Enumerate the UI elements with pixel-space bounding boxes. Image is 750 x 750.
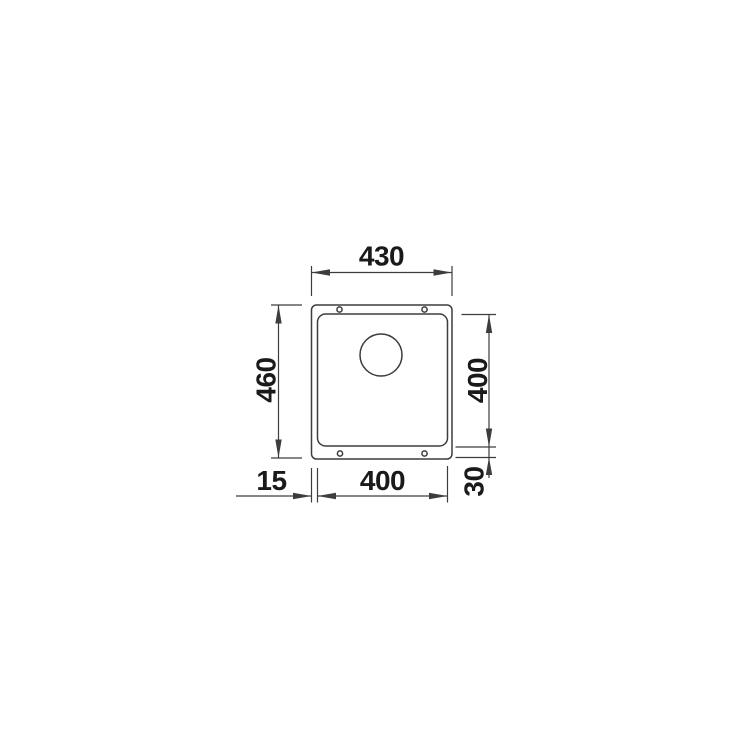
dimension-label-bottom-rim-offset: 30 [459,466,490,496]
arrowhead-down-icon [486,429,492,448]
sink-outer-edge [312,305,453,459]
mounting-hole-bottom-right [422,451,427,456]
arrowhead-left-icon [318,493,337,499]
sink-dimension-drawing: 430 460 400 30 [0,0,750,750]
dimension-left-rim-offset: 15 [236,465,312,499]
mounting-hole-top-left [337,307,342,312]
arrowhead-up-icon [275,305,281,324]
dimension-label-outer-width: 430 [359,241,404,272]
arrowhead-right-icon [429,493,448,499]
arrowhead-left-icon [312,269,331,275]
arrowhead-right-icon [434,269,453,275]
dimension-outer-height: 460 [251,305,303,458]
drain-hole [360,334,402,376]
dimension-label-basin-width: 400 [360,465,405,496]
dimension-basin-width: 400 [312,465,448,503]
arrowhead-right-icon [293,493,312,499]
dimension-label-basin-height: 400 [462,358,493,403]
arrowhead-down-icon [275,440,281,459]
dimension-label-outer-height: 460 [251,357,282,402]
dimension-label-left-rim-offset: 15 [256,465,286,496]
arrowhead-up-icon [486,315,492,334]
dimension-basin-height: 400 [456,315,497,448]
dimension-outer-width: 430 [312,241,453,297]
mounting-hole-bottom-left [337,451,342,456]
mounting-hole-top-right [422,307,427,312]
technical-drawing-canvas: 430 460 400 30 [0,0,750,750]
dimension-bottom-rim-offset: 30 [456,447,497,497]
sink-plan-view [312,305,453,459]
